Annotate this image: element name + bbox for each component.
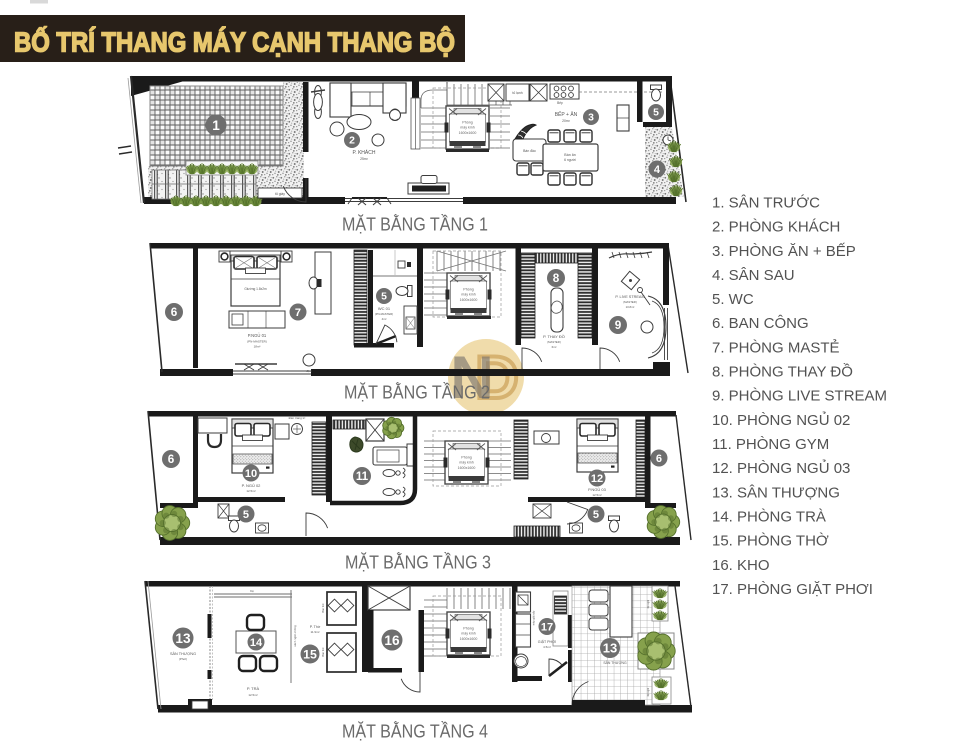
svg-text:4: 4: [654, 164, 661, 176]
svg-text:GIẶT PHƠI: GIẶT PHƠI: [538, 640, 556, 644]
svg-text:tủ giày: tủ giày: [275, 192, 285, 196]
svg-text:4. SÂN SAU: 4. SÂN SAU: [712, 267, 795, 284]
svg-text:6m²: 6m²: [552, 345, 557, 349]
svg-text:25m²: 25m²: [360, 157, 369, 161]
svg-text:P.NGỦ 01: P.NGỦ 01: [248, 333, 267, 338]
svg-text:13: 13: [603, 641, 617, 656]
svg-text:12.5m²: 12.5m²: [246, 489, 255, 493]
svg-text:11. PHÒNG GYM: 11. PHÒNG GYM: [712, 436, 829, 453]
svg-text:13: 13: [175, 631, 191, 646]
svg-text:MẶT BẰNG TẦNG 2: MẶT BẰNG TẦNG 2: [344, 382, 490, 403]
svg-text:10. PHÒNG NGỦ 02: 10. PHÒNG NGỦ 02: [712, 411, 850, 429]
svg-text:3: 3: [588, 113, 594, 124]
svg-text:10.8m²: 10.8m²: [626, 305, 635, 309]
svg-text:Phòng: Phòng: [461, 456, 471, 460]
svg-text:(PN-MASTER): (PN-MASTER): [375, 312, 393, 316]
svg-text:3. PHÒNG ĂN + BẾP: 3. PHÒNG ĂN + BẾP: [712, 243, 856, 260]
svg-text:6 người: 6 người: [564, 158, 576, 162]
svg-text:(MASTER): (MASTER): [547, 340, 561, 344]
svg-text:17. PHÒNG GIẶT PHƠI: 17. PHÒNG GIẶT PHƠI: [712, 581, 873, 598]
svg-text:MẶT BẰNG TẦNG 4: MẶT BẰNG TẦNG 4: [342, 721, 488, 742]
svg-text:P. KHÁCH: P. KHÁCH: [353, 149, 376, 156]
svg-text:Bàn thờ: Bàn thờ: [321, 603, 325, 612]
svg-text:SÂN THƯỢNG: SÂN THƯỢNG: [603, 661, 627, 665]
svg-text:đệm: đệm: [306, 369, 312, 373]
svg-text:máy kính: máy kính: [459, 461, 474, 465]
svg-text:10: 10: [245, 468, 257, 480]
svg-text:11: 11: [356, 470, 369, 483]
svg-text:P. THAY ĐỒ: P. THAY ĐỒ: [543, 334, 565, 339]
svg-text:1. SÂN TRƯỚC: 1. SÂN TRƯỚC: [712, 195, 820, 212]
svg-text:12: 12: [591, 473, 603, 485]
svg-text:18m²: 18m²: [254, 345, 261, 349]
svg-text:9: 9: [615, 319, 622, 332]
svg-text:Bếp: Bếp: [557, 101, 563, 105]
svg-text:Phòng: Phòng: [463, 288, 473, 292]
svg-text:SÂN THƯỢNG: SÂN THƯỢNG: [170, 651, 196, 656]
svg-text:5: 5: [243, 509, 249, 521]
svg-text:14: 14: [250, 637, 263, 649]
svg-text:P. Thờ: P. Thờ: [310, 625, 321, 629]
svg-text:WC 01: WC 01: [378, 306, 391, 311]
svg-text:Bàn thờ: Bàn thờ: [321, 647, 325, 656]
svg-text:BẾP + ĂN: BẾP + ĂN: [555, 111, 578, 118]
svg-text:BỐ TRÍ THANG MÁY CẠNH THANG BỘ: BỐ TRÍ THANG MÁY CẠNH THANG BỘ: [14, 26, 455, 58]
svg-text:17: 17: [541, 621, 553, 633]
svg-text:6: 6: [171, 306, 178, 319]
svg-text:13. SÂN THƯỢNG: 13. SÂN THƯỢNG: [712, 484, 840, 501]
svg-text:MẶT BẰNG TẦNG 3: MẶT BẰNG TẦNG 3: [345, 552, 491, 573]
svg-text:Bàn ăn: Bàn ăn: [564, 153, 575, 157]
svg-text:(Phơi): (Phơi): [179, 657, 187, 661]
svg-text:5: 5: [653, 108, 659, 119]
svg-text:(MASTER): (MASTER): [623, 300, 637, 304]
svg-text:15. PHÒNG THỜ: 15. PHÒNG THỜ: [712, 533, 829, 550]
svg-text:1600x1600: 1600x1600: [460, 298, 478, 302]
svg-text:máy kính: máy kính: [461, 632, 476, 636]
svg-text:1600x1600: 1600x1600: [459, 131, 477, 135]
svg-text:tủ lạnh: tủ lạnh: [512, 91, 522, 95]
svg-text:9. PHÒNG LIVE STREAM: 9. PHÒNG LIVE STREAM: [712, 388, 887, 405]
svg-text:12.5m²: 12.5m²: [592, 493, 601, 497]
svg-text:11.9m²: 11.9m²: [310, 630, 319, 634]
svg-text:MẶT BẰNG TẦNG 1: MẶT BẰNG TẦNG 1: [342, 214, 488, 235]
svg-text:15: 15: [303, 647, 317, 661]
svg-text:(PN-MASTER): (PN-MASTER): [247, 340, 267, 344]
svg-text:Bàn đảo: Bàn đảo: [523, 149, 536, 153]
svg-text:7: 7: [295, 307, 301, 319]
svg-text:7. PHÒNG MASTẺ: 7. PHÒNG MASTẺ: [712, 339, 840, 356]
svg-text:4m²: 4m²: [382, 317, 387, 321]
svg-text:Giường 1.8x2m: Giường 1.8x2m: [244, 287, 267, 291]
svg-text:8: 8: [553, 272, 560, 285]
svg-text:20m²: 20m²: [562, 119, 571, 123]
svg-text:máy giặt sấy: máy giặt sấy: [532, 610, 536, 625]
svg-text:P. TRÀ: P. TRÀ: [247, 686, 260, 691]
svg-text:bệ ngồi: bệ ngồi: [646, 687, 650, 696]
svg-text:14. PHÒNG TRÀ: 14. PHÒNG TRÀ: [712, 509, 826, 526]
svg-text:Phòng: Phòng: [462, 121, 472, 125]
svg-text:4.5m²: 4.5m²: [543, 645, 551, 649]
svg-text:8. PHÒNG THAY ĐỒ: 8. PHÒNG THAY ĐỒ: [712, 363, 853, 381]
svg-text:16. KHO: 16. KHO: [712, 557, 770, 574]
svg-text:6: 6: [168, 453, 175, 466]
svg-text:P. LIVE STREAM: P. LIVE STREAM: [615, 295, 644, 299]
svg-text:Kệ: Kệ: [250, 589, 254, 593]
svg-text:1600x1600: 1600x1600: [458, 466, 476, 470]
svg-text:12. PHÒNG NGỦ 03: 12. PHÒNG NGỦ 03: [712, 459, 850, 477]
svg-text:6: 6: [656, 453, 662, 465]
svg-text:5. WC: 5. WC: [712, 291, 754, 308]
svg-text:2: 2: [349, 136, 355, 147]
svg-text:P.NGỦ 03: P.NGỦ 03: [588, 487, 606, 492]
svg-text:6. BAN CÔNG: 6. BAN CÔNG: [712, 315, 809, 332]
svg-text:máy kính: máy kính: [461, 293, 476, 297]
svg-text:máy kính: máy kính: [460, 126, 475, 130]
svg-text:1600x1600: 1600x1600: [460, 637, 478, 641]
svg-text:1: 1: [212, 118, 220, 133]
svg-text:5: 5: [593, 509, 599, 521]
svg-text:5: 5: [381, 292, 387, 303]
svg-text:16: 16: [384, 633, 400, 648]
svg-text:2. PHÒNG KHÁCH: 2. PHÒNG KHÁCH: [712, 219, 840, 236]
svg-text:bệ ngồi: bệ ngồi: [646, 599, 650, 608]
svg-text:vách ngăn chống: vách ngăn chống: [293, 625, 297, 647]
svg-text:Đèn trang trí: Đèn trang trí: [289, 416, 306, 420]
svg-text:12.5m²: 12.5m²: [248, 693, 257, 697]
svg-text:P. NGỦ 02: P. NGỦ 02: [242, 483, 262, 488]
svg-text:Phòng: Phòng: [463, 627, 473, 631]
